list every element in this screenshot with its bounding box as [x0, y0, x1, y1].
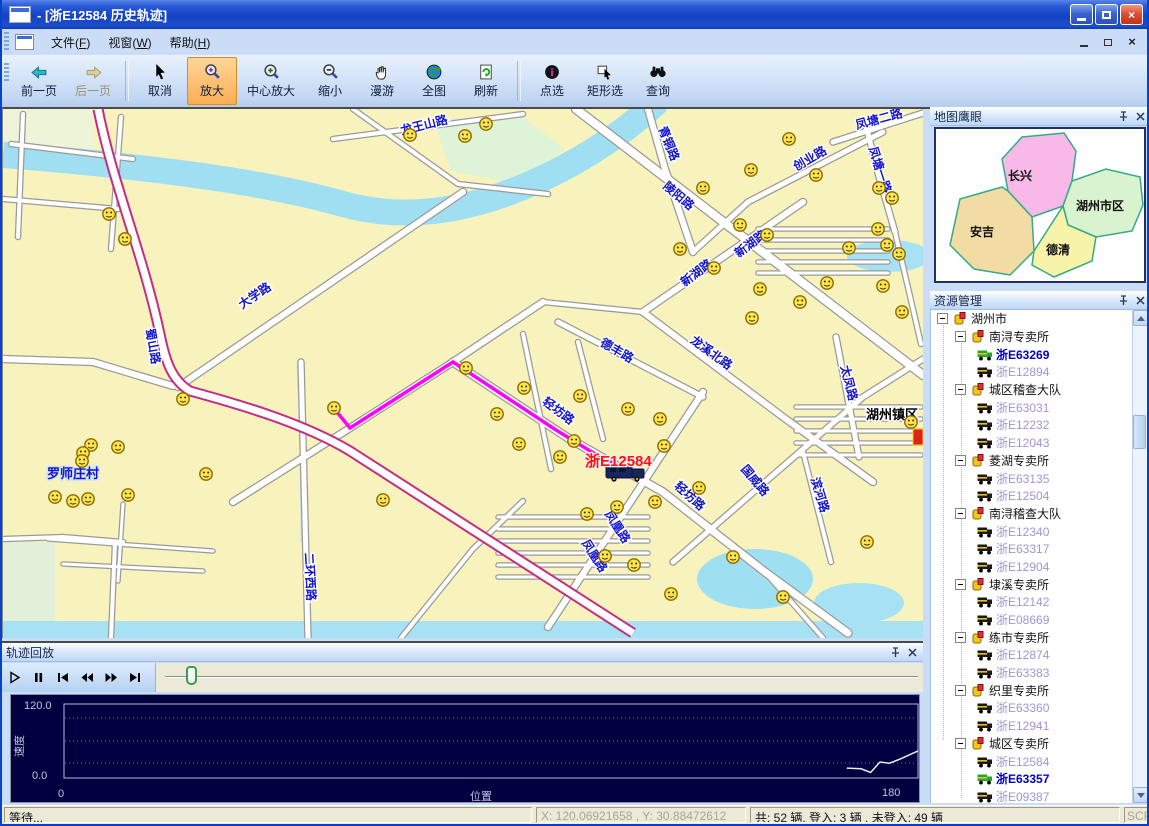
vehicle-marker-icon[interactable] — [200, 468, 212, 480]
tree-vehicle-label: 浙E08669 — [996, 611, 1049, 628]
scroll-down-icon — [1137, 793, 1145, 798]
vehicle-marker-icon[interactable] — [843, 242, 855, 254]
road-label: 国威路 — [738, 461, 773, 499]
tree-vehicle-label: 浙E12043 — [996, 434, 1049, 451]
scroll-up-button[interactable] — [1133, 310, 1148, 326]
vehicle-marker-icon[interactable] — [49, 491, 61, 503]
toolbar-button-page-next[interactable]: 后一页 — [67, 57, 119, 105]
vehicle-marker-icon[interactable] — [459, 130, 471, 142]
close-icon: × — [1128, 8, 1135, 22]
tree-item-vehicle[interactable]: 浙E63360 — [931, 699, 1132, 717]
organization-icon — [970, 383, 986, 396]
collapse-icon[interactable] — [955, 455, 966, 466]
tree-item-vehicle[interactable]: 浙E12941 — [931, 717, 1132, 735]
resources-title: 资源管理 — [934, 292, 982, 309]
toolbar-button-zoom-out[interactable]: 缩小 — [305, 57, 355, 105]
vehicle-marker-icon[interactable] — [893, 248, 905, 260]
eagle-eye-header: 地图鹰眼 — [930, 107, 1149, 126]
tree-item-group[interactable]: 练市专卖所 — [931, 628, 1132, 646]
tree-item-vehicle[interactable]: 浙E63269 — [931, 345, 1132, 363]
tree-item-group[interactable]: 菱湖专卖所 — [931, 452, 1132, 470]
fast-forward-icon — [103, 670, 119, 685]
tree-item-group[interactable]: 城区专卖所 — [931, 735, 1132, 753]
truck-offline-icon — [977, 436, 993, 449]
tree-item-root[interactable]: 湖州市 — [931, 310, 1132, 328]
playback-header: 轨迹回放 — [2, 641, 923, 662]
truck-offline-icon — [977, 472, 993, 485]
mdi-close-icon: × — [1128, 36, 1136, 47]
vehicle-marker-icon[interactable] — [886, 192, 898, 204]
toolbar-button-label: 漫游 — [370, 82, 394, 99]
region-label: 湖州市区 — [1076, 197, 1124, 214]
collapse-icon[interactable] — [955, 579, 966, 590]
truck-offline-icon — [977, 701, 993, 714]
mdi-close-button[interactable]: × — [1125, 34, 1139, 47]
organization-icon — [970, 507, 986, 520]
tree-vehicle-label: 浙E63383 — [996, 664, 1049, 681]
road-label: 滨河路 — [808, 475, 833, 515]
toolbar-button-binoculars[interactable]: 查询 — [633, 57, 683, 105]
step-start-button[interactable] — [52, 667, 74, 689]
vehicle-marker-icon[interactable] — [745, 164, 757, 176]
close-button[interactable]: × — [1120, 4, 1143, 25]
tree-vehicle-label: 浙E63269 — [996, 346, 1049, 363]
vehicle-marker-icon[interactable] — [122, 489, 134, 501]
collapse-icon[interactable] — [955, 632, 966, 643]
resources-header: 资源管理 — [930, 291, 1149, 310]
toolbar-grip[interactable] — [4, 32, 9, 52]
tree-vehicle-label: 浙E63357 — [996, 770, 1049, 787]
organization-icon — [970, 330, 986, 343]
vehicle-marker-icon[interactable] — [654, 413, 666, 425]
toolbar-button-label: 点选 — [540, 82, 564, 99]
truck-offline-icon — [977, 560, 993, 573]
map-viewport[interactable]: 龙王山路青铜路陵阳路创业路凤塘二路凤塘一路新湖路大学路蜀山路德丰路龙溪北路轻坊路… — [2, 107, 923, 638]
tree-scrollbar[interactable] — [1132, 310, 1148, 803]
tree-item-vehicle[interactable]: 浙E63357 — [931, 770, 1132, 788]
scrollbar-thumb[interactable] — [1133, 415, 1146, 449]
tree-item-vehicle[interactable]: 浙E12142 — [931, 593, 1132, 611]
tree-vehicle-label: 浙E12142 — [996, 593, 1049, 610]
collapse-icon[interactable] — [955, 685, 966, 696]
mdi-document-icon[interactable] — [15, 34, 34, 50]
region-label: 安吉 — [970, 223, 994, 240]
vehicle-marker-icon[interactable] — [783, 133, 795, 145]
rewind-icon — [79, 670, 95, 685]
vehicle-marker-icon[interactable] — [460, 362, 472, 374]
scroll-down-button[interactable] — [1133, 787, 1148, 803]
tree-item-vehicle[interactable]: 浙E63317 — [931, 540, 1132, 558]
toolbar-button-rect-select[interactable]: 矩形选 — [579, 57, 631, 105]
vehicle-marker-icon[interactable] — [761, 229, 773, 241]
menu-bar: 文件(F)视窗(W)帮助(H) × — [2, 29, 1147, 56]
toolbar-button-refresh[interactable]: 刷新 — [461, 57, 511, 105]
toolbar-grip-2[interactable] — [4, 63, 9, 83]
organization-icon — [970, 737, 986, 750]
tree-item-vehicle[interactable]: 浙E12874 — [931, 646, 1132, 664]
tree-root-label: 湖州市 — [971, 310, 1007, 327]
tree-group-label: 南浔稽查大队 — [989, 505, 1061, 522]
restore-button[interactable] — [1095, 4, 1118, 25]
tree-item-group[interactable]: 南浔专卖所 — [931, 328, 1132, 346]
toolbar-button-label: 全图 — [422, 82, 446, 99]
toolbar: 前一页后一页取消放大中心放大缩小漫游全图刷新i点选矩形选查询 — [2, 55, 1147, 108]
tree-item-vehicle[interactable]: 浙E63383 — [931, 664, 1132, 682]
vehicle-marker-icon[interactable] — [76, 455, 88, 467]
application-window: - [浙E12584 历史轨迹] × 文件(F)视窗(W)帮助(H) × 前一页… — [0, 0, 1149, 826]
tracked-vehicle-label: 浙E12584 — [585, 452, 652, 470]
truck-offline-icon — [977, 525, 993, 538]
tree-item-vehicle[interactable]: 浙E12504 — [931, 487, 1132, 505]
playback-slider-thumb[interactable] — [186, 666, 197, 685]
restore-icon — [1102, 11, 1111, 19]
collapse-icon[interactable] — [955, 738, 966, 749]
truck-offline-icon — [977, 365, 993, 378]
status-scroll-lock: SCRL — [1124, 807, 1148, 823]
truck-offline-icon — [977, 666, 993, 679]
vehicle-marker-icon[interactable] — [665, 588, 677, 600]
truck-offline-icon — [977, 401, 993, 414]
tree-group-label: 城区稽查大队 — [989, 381, 1061, 398]
organization-icon — [970, 578, 986, 591]
vehicle-marker-icon[interactable] — [554, 451, 566, 463]
status-message: 等待... — [4, 807, 532, 823]
vehicle-marker-icon[interactable] — [877, 280, 889, 292]
pause-button[interactable] — [28, 667, 50, 689]
region-label: 长兴 — [1008, 167, 1032, 184]
organization-icon — [970, 684, 986, 697]
vehicle-marker-icon[interactable] — [873, 182, 885, 194]
tree-group-label: 南浔专卖所 — [989, 328, 1049, 345]
vehicle-marker-icon[interactable] — [693, 482, 705, 494]
tree-item-vehicle[interactable]: 浙E12904 — [931, 558, 1132, 576]
playback-close-icon[interactable] — [906, 646, 919, 659]
eagle-close-icon[interactable] — [1134, 110, 1147, 123]
pin-icon[interactable] — [1117, 110, 1130, 123]
vehicle-marker-icon[interactable] — [518, 382, 530, 394]
mdi-restore-icon — [1104, 39, 1112, 46]
vehicle-marker-icon[interactable] — [708, 262, 720, 274]
tree-vehicle-label: 浙E12941 — [996, 717, 1049, 734]
vehicle-marker-icon[interactable] — [513, 438, 525, 450]
tree-item-vehicle[interactable]: 浙E12584 — [931, 752, 1132, 770]
vehicle-marker-icon[interactable] — [896, 306, 908, 318]
vehicle-marker-icon[interactable] — [872, 223, 884, 235]
speed-chart — [10, 694, 920, 803]
tree-vehicle-label: 浙E63135 — [996, 470, 1049, 487]
road-label: 创业路 — [790, 142, 830, 174]
vehicle-marker-icon[interactable] — [658, 440, 670, 452]
collapse-icon[interactable] — [955, 384, 966, 395]
status-coordinates: X: 120.06921658 , Y: 30.88472612 — [536, 807, 746, 823]
toolbar-button-pan-hand[interactable]: 漫游 — [357, 57, 407, 105]
truck-offline-icon — [977, 542, 993, 555]
vehicle-marker-icon[interactable] — [649, 496, 661, 508]
y-max-label: 120.0 — [24, 700, 52, 712]
menu-item[interactable]: 文件(F) — [42, 31, 99, 54]
vehicle-marker-icon[interactable] — [697, 182, 709, 194]
tree-vehicle-label: 浙E12904 — [996, 558, 1049, 575]
toolbar-button-page-prev[interactable]: 前一页 — [13, 57, 65, 105]
vehicle-marker-icon[interactable] — [821, 277, 833, 289]
x-max-label: 180 — [882, 787, 900, 799]
collapse-icon[interactable] — [955, 331, 966, 342]
vehicle-marker-icon[interactable] — [628, 559, 640, 571]
panel-splitter[interactable] — [923, 107, 930, 638]
status-bar: 等待... X: 120.06921658 , Y: 30.88472612 共… — [2, 805, 1147, 825]
vehicle-marker-icon[interactable] — [581, 508, 593, 520]
tree-group-label: 菱湖专卖所 — [989, 452, 1049, 469]
tree-vehicle-label: 浙E09387 — [996, 788, 1049, 803]
vehicle-marker-icon[interactable] — [112, 441, 124, 453]
road-label: 大学路 — [235, 278, 274, 311]
minimize-icon — [1077, 18, 1086, 21]
rewind-button[interactable] — [76, 667, 98, 689]
vehicle-marker-icon[interactable] — [810, 169, 822, 181]
tree-item-vehicle[interactable]: 浙E63135 — [931, 469, 1132, 487]
collapse-icon[interactable] — [937, 313, 948, 324]
vehicle-marker-icon[interactable] — [777, 591, 789, 603]
y-axis-title: 速度 — [11, 735, 27, 757]
organization-icon — [952, 312, 968, 325]
tree-item-vehicle[interactable]: 浙E12340 — [931, 522, 1132, 540]
tree-item-vehicle[interactable]: 浙E09387 — [931, 788, 1132, 803]
truck-offline-icon — [977, 418, 993, 431]
vehicle-marker-icon[interactable] — [491, 408, 503, 420]
tree-vehicle-label: 浙E63360 — [996, 699, 1049, 716]
tree-item-vehicle[interactable]: 浙E08669 — [931, 611, 1132, 629]
road-label: 二环西路 — [302, 552, 320, 602]
vehicle-marker-icon[interactable] — [82, 493, 94, 505]
toolbar-button-label: 中心放大 — [247, 82, 295, 99]
pin-icon[interactable] — [1117, 294, 1130, 307]
tree-item-group[interactable]: 城区稽查大队 — [931, 381, 1132, 399]
window-title: - [浙E12584 历史轨迹] — [37, 5, 167, 24]
track-polyline — [336, 362, 621, 467]
mdi-restore-button[interactable] — [1101, 34, 1115, 47]
playback-title: 轨迹回放 — [6, 644, 54, 661]
mdi-minimize-button[interactable] — [1077, 34, 1091, 47]
menu-item[interactable]: 帮助(H) — [161, 31, 220, 54]
tree-group-label: 织里专卖所 — [989, 682, 1049, 699]
toolbar-button-cursor[interactable]: 取消 — [135, 57, 185, 105]
app-icon — [9, 6, 31, 23]
speed-chart-canvas — [11, 695, 919, 802]
vehicle-marker-icon[interactable] — [794, 296, 806, 308]
road-label: 太凤路 — [838, 364, 862, 404]
play-icon — [7, 670, 23, 685]
resources-close-icon[interactable] — [1134, 294, 1147, 307]
step-end-button[interactable] — [124, 667, 146, 689]
truck-offline-icon — [977, 755, 993, 768]
poi-marker — [913, 429, 923, 445]
tree-vehicle-label: 浙E63031 — [996, 399, 1049, 416]
step-start-icon — [55, 670, 71, 685]
tree-vehicle-label: 浙E12894 — [996, 363, 1049, 380]
toolbar-button-label: 刷新 — [474, 82, 498, 99]
toolbar-button-label: 矩形选 — [587, 82, 623, 99]
truck-offline-icon — [977, 719, 993, 732]
map-overlay: 龙王山路青铜路陵阳路创业路凤塘二路凤塘一路新湖路大学路蜀山路德丰路龙溪北路轻坊路… — [3, 109, 923, 638]
scroll-up-icon — [1137, 316, 1145, 321]
truck-offline-icon — [977, 595, 993, 608]
vehicle-marker-icon[interactable] — [103, 208, 115, 220]
organization-icon — [970, 631, 986, 644]
y-min-label: 0.0 — [32, 770, 47, 782]
region-label: 德清 — [1046, 241, 1070, 258]
toolbar-button-label: 放大 — [200, 82, 224, 99]
x-axis-title: 位置 — [470, 788, 492, 804]
vehicle-marker-icon[interactable] — [881, 239, 893, 251]
title-bar[interactable]: - [浙E12584 历史轨迹] × — [2, 0, 1147, 29]
road-label: 德丰路 — [598, 335, 638, 366]
vehicle-marker-icon[interactable] — [611, 501, 623, 513]
vehicle-marker-icon[interactable] — [861, 536, 873, 548]
vehicle-marker-icon[interactable] — [754, 283, 766, 295]
vehicle-marker-icon[interactable] — [67, 495, 79, 507]
toolbar-separator — [517, 61, 521, 101]
vehicle-marker-icon[interactable] — [622, 403, 634, 415]
vehicle-marker-icon[interactable] — [377, 494, 389, 506]
vehicle-marker-icon[interactable] — [734, 219, 746, 231]
pause-icon — [31, 670, 47, 685]
road-label: 蜀山路 — [143, 327, 164, 366]
vehicle-marker-icon[interactable] — [480, 118, 492, 130]
status-vehicle-counts: 共: 52 辆. 登入: 3 辆 , 未登入: 49 辆 — [750, 807, 1120, 823]
tree-item-group[interactable]: 织里专卖所 — [931, 681, 1132, 699]
fast-forward-button[interactable] — [100, 667, 122, 689]
tree-group-label: 埭溪专卖所 — [989, 576, 1049, 593]
organization-icon — [970, 454, 986, 467]
resource-tree: 湖州市南浔专卖所浙E63269浙E12894城区稽查大队浙E63031浙E122… — [930, 310, 1132, 803]
road-label: 凤塘二路 — [854, 109, 905, 132]
truck-online-icon — [977, 772, 993, 785]
toolbar-button-zoom-in[interactable]: 放大 — [187, 57, 237, 105]
mdi-minimize-icon — [1080, 45, 1088, 47]
truck-offline-icon — [977, 790, 993, 803]
eagle-eye-title: 地图鹰眼 — [934, 108, 982, 125]
tree-vehicle-label: 浙E12584 — [996, 753, 1049, 770]
toolbar-button-label: 查询 — [646, 82, 670, 99]
truck-offline-icon — [977, 489, 993, 502]
truck-online-icon — [977, 348, 993, 361]
vehicle-marker-icon[interactable] — [119, 233, 131, 245]
road-label: 龙溪北路 — [688, 332, 736, 373]
toolbar-button-label: 取消 — [148, 82, 172, 99]
tree-group-label: 练市专卖所 — [989, 629, 1049, 646]
road-label: 青铜路 — [655, 124, 683, 164]
step-end-icon — [127, 670, 143, 685]
toolbar-button-label: 前一页 — [21, 82, 57, 99]
tree-vehicle-label: 浙E12874 — [996, 646, 1049, 663]
tree-vehicle-label: 浙E12232 — [996, 416, 1049, 433]
tree-item-vehicle[interactable]: 浙E12043 — [931, 434, 1132, 452]
pin-icon[interactable] — [889, 646, 902, 659]
x-min-label: 0 — [58, 788, 64, 800]
tree-item-vehicle[interactable]: 浙E12232 — [931, 416, 1132, 434]
speed-series-line — [847, 751, 918, 773]
play-button[interactable] — [4, 667, 26, 689]
vehicle-marker-icon[interactable] — [727, 551, 739, 563]
village-label: 罗师庄村 — [47, 466, 99, 481]
vehicle-marker-icon[interactable] — [568, 435, 580, 447]
toolbar-button-label: 后一页 — [75, 82, 111, 99]
tree-item-group[interactable]: 埭溪专卖所 — [931, 575, 1132, 593]
road-label: 陵阳路 — [660, 178, 698, 213]
vehicle-marker-icon[interactable] — [905, 416, 917, 428]
minimize-button[interactable] — [1070, 4, 1093, 25]
eagle-eye-map[interactable]: 长兴 湖州市区 安吉 德清 — [934, 127, 1146, 283]
tree-item-vehicle[interactable]: 浙E12894 — [931, 363, 1132, 381]
vehicle-marker-icon[interactable] — [574, 390, 586, 402]
vehicle-marker-icon[interactable] — [674, 243, 686, 255]
truck-offline-icon — [977, 613, 993, 626]
vehicle-marker-icon[interactable] — [404, 129, 416, 141]
vehicle-marker-icon[interactable] — [328, 402, 340, 414]
tree-vehicle-label: 浙E63317 — [996, 540, 1049, 557]
toolbar-separator — [125, 61, 129, 101]
menu-item[interactable]: 视窗(W) — [99, 31, 160, 54]
playback-slider[interactable] — [165, 676, 918, 678]
collapse-icon[interactable] — [955, 508, 966, 519]
tree-item-vehicle[interactable]: 浙E63031 — [931, 398, 1132, 416]
toolbar-button-zoom-center[interactable]: 中心放大 — [239, 57, 303, 105]
vehicle-marker-icon[interactable] — [177, 393, 189, 405]
tree-vehicle-label: 浙E12340 — [996, 523, 1049, 540]
tree-group-label: 城区专卖所 — [989, 735, 1049, 752]
toolbar-button-globe[interactable]: 全图 — [409, 57, 459, 105]
vehicle-marker-icon[interactable] — [746, 312, 758, 324]
truck-offline-icon — [977, 648, 993, 661]
tree-item-group[interactable]: 南浔稽查大队 — [931, 505, 1132, 523]
toolbar-button-label: 缩小 — [318, 82, 342, 99]
tree-vehicle-label: 浙E12504 — [996, 487, 1049, 504]
toolbar-button-info-point[interactable]: i点选 — [527, 57, 577, 105]
vehicle-marker-icon[interactable] — [599, 550, 611, 562]
